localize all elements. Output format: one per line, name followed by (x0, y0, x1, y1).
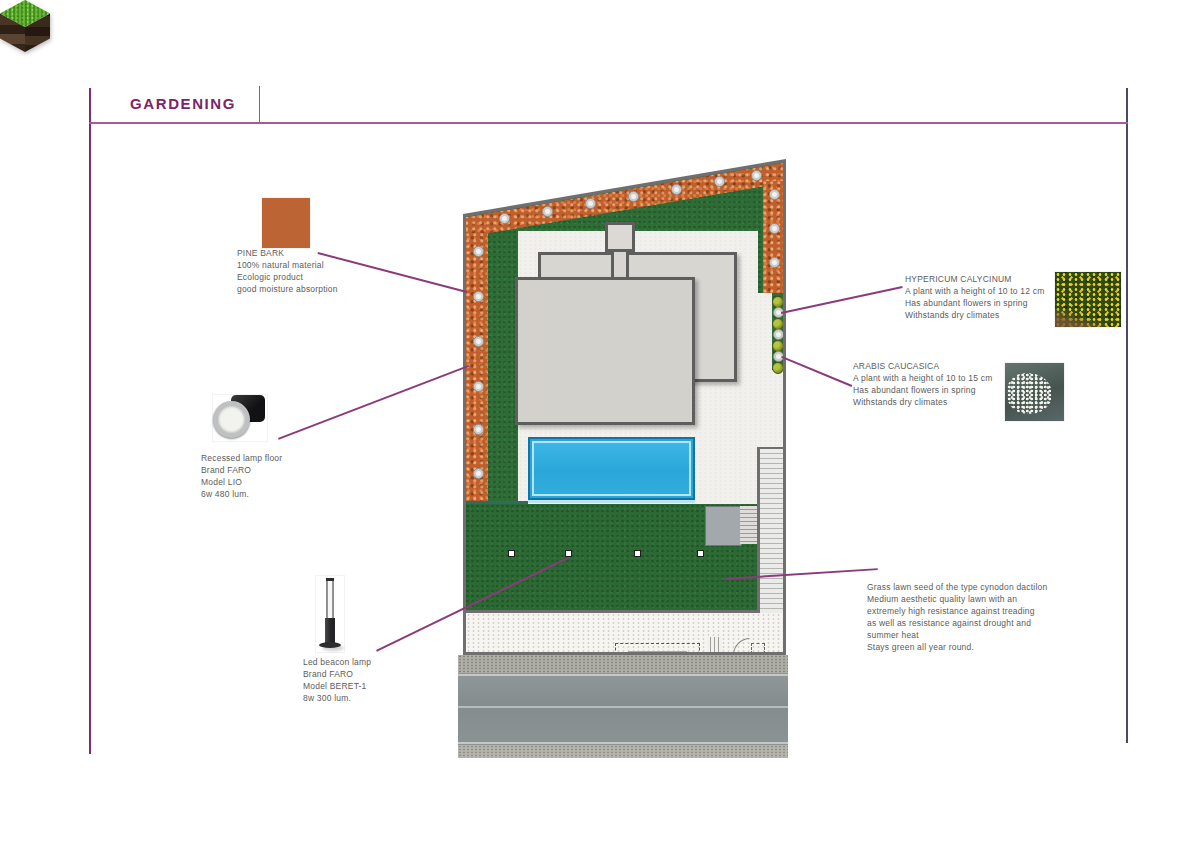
lawn-area (458, 155, 790, 660)
building-link (611, 252, 629, 277)
recessed-lamp-icon (473, 424, 484, 435)
frame-horizontal-line (89, 122, 1128, 124)
beacon-lamp-icon (634, 550, 641, 557)
recessed-lamp-icon (473, 381, 484, 392)
frame-right-line (1126, 88, 1128, 743)
recessed-lamp-icon (628, 191, 639, 202)
recessed-lamp-icon (751, 170, 762, 181)
hypericum-photo (1055, 272, 1121, 327)
pine-bark-title: PINE BARK (237, 247, 338, 259)
shrub-icon (772, 362, 784, 374)
lamp-pole (325, 618, 335, 644)
pool-coping-line (528, 500, 695, 503)
site-plan (458, 155, 790, 760)
beacon-lamp-photo (316, 576, 344, 652)
recessed-lamp-icon (671, 184, 682, 195)
leader-line-recessed-lamp (278, 365, 469, 440)
recessed-lamp-callout: Recessed lamp floor Brand FARO Model LIO… (201, 452, 282, 500)
pool-water (532, 441, 691, 496)
page-title: GARDENING (130, 95, 236, 112)
beacon-lamp-icon (697, 550, 704, 557)
lamp-light-stripe (326, 578, 334, 623)
grass-callout: Grass lawn seed of the type cynodon dact… (867, 581, 1047, 653)
recessed-lamp-icon (714, 176, 725, 187)
pine-bark-callout: PINE BARK 100% natural material Ecologic… (237, 247, 338, 295)
beacon-lamp-icon (565, 550, 572, 557)
beacon-lamp-callout: Led beacon lamp Brand FARO Model BERET-1… (303, 656, 371, 704)
pine-bark-photo (262, 198, 310, 248)
recessed-lamp-icon (473, 336, 484, 347)
leader-line-arabis (781, 356, 852, 386)
leader-line-hypericum (781, 286, 903, 313)
recessed-lamp-icon (499, 213, 510, 224)
arabis-photo (1005, 363, 1064, 421)
pine-bark-strip-left (466, 233, 488, 502)
building-roof-main (515, 277, 695, 425)
title-separator-line (259, 86, 260, 123)
hypericum-callout: HYPERICUM CALYCINUM A plant with a heigh… (905, 273, 1045, 321)
entrance-gate-dashed (615, 643, 700, 655)
landing-platform (705, 506, 742, 546)
entry-steps (707, 637, 722, 652)
road-line (458, 706, 788, 708)
arabis-title: ARABIS CAUCASICA (853, 360, 993, 372)
road (458, 673, 788, 745)
recessed-lamp-icon (473, 291, 484, 302)
arabis-callout: ARABIS CAUCASICA A plant with a height o… (853, 360, 993, 408)
recessed-lamp-icon (773, 329, 784, 340)
recessed-lamp-icon (473, 246, 484, 257)
swimming-pool (528, 437, 695, 500)
recessed-lamp-icon (542, 206, 553, 217)
recessed-lamp-icon (769, 223, 780, 234)
site-boundary (458, 155, 790, 660)
building-chimney (605, 222, 635, 252)
hypericum-title: HYPERICUM CALYCINUM (905, 273, 1045, 285)
beacon-lamp-icon (508, 550, 515, 557)
recessed-lamp-icon (473, 468, 484, 479)
recessed-lamp-icon (769, 189, 780, 200)
lamp-face (213, 401, 250, 438)
recessed-lamp-photo (213, 395, 267, 441)
small-dashed-box (751, 643, 765, 654)
side-stairs (760, 447, 783, 616)
grass-sod-photo (0, 0, 50, 52)
small-stairs (740, 506, 757, 544)
sidewalk-far (458, 745, 788, 758)
recessed-lamp-icon (769, 257, 780, 268)
road-line (458, 674, 788, 676)
sheet-canvas: GARDENING (0, 0, 1200, 848)
road-line (458, 742, 788, 744)
recessed-lamp-icon (585, 198, 596, 209)
sidewalk-near (458, 655, 788, 673)
frame-left-line (89, 88, 91, 754)
lamp-base (319, 642, 341, 648)
leader-line-pine-bark (318, 252, 467, 293)
